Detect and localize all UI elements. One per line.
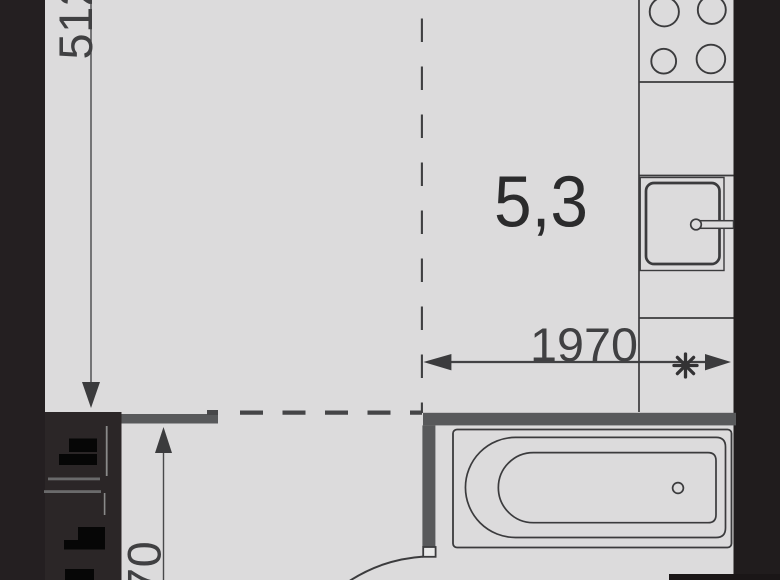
- svg-text:5120: 5120: [49, 0, 102, 60]
- svg-text:1970: 1970: [530, 318, 638, 371]
- svg-text:70: 70: [118, 541, 171, 580]
- svg-text:5,3: 5,3: [494, 163, 588, 243]
